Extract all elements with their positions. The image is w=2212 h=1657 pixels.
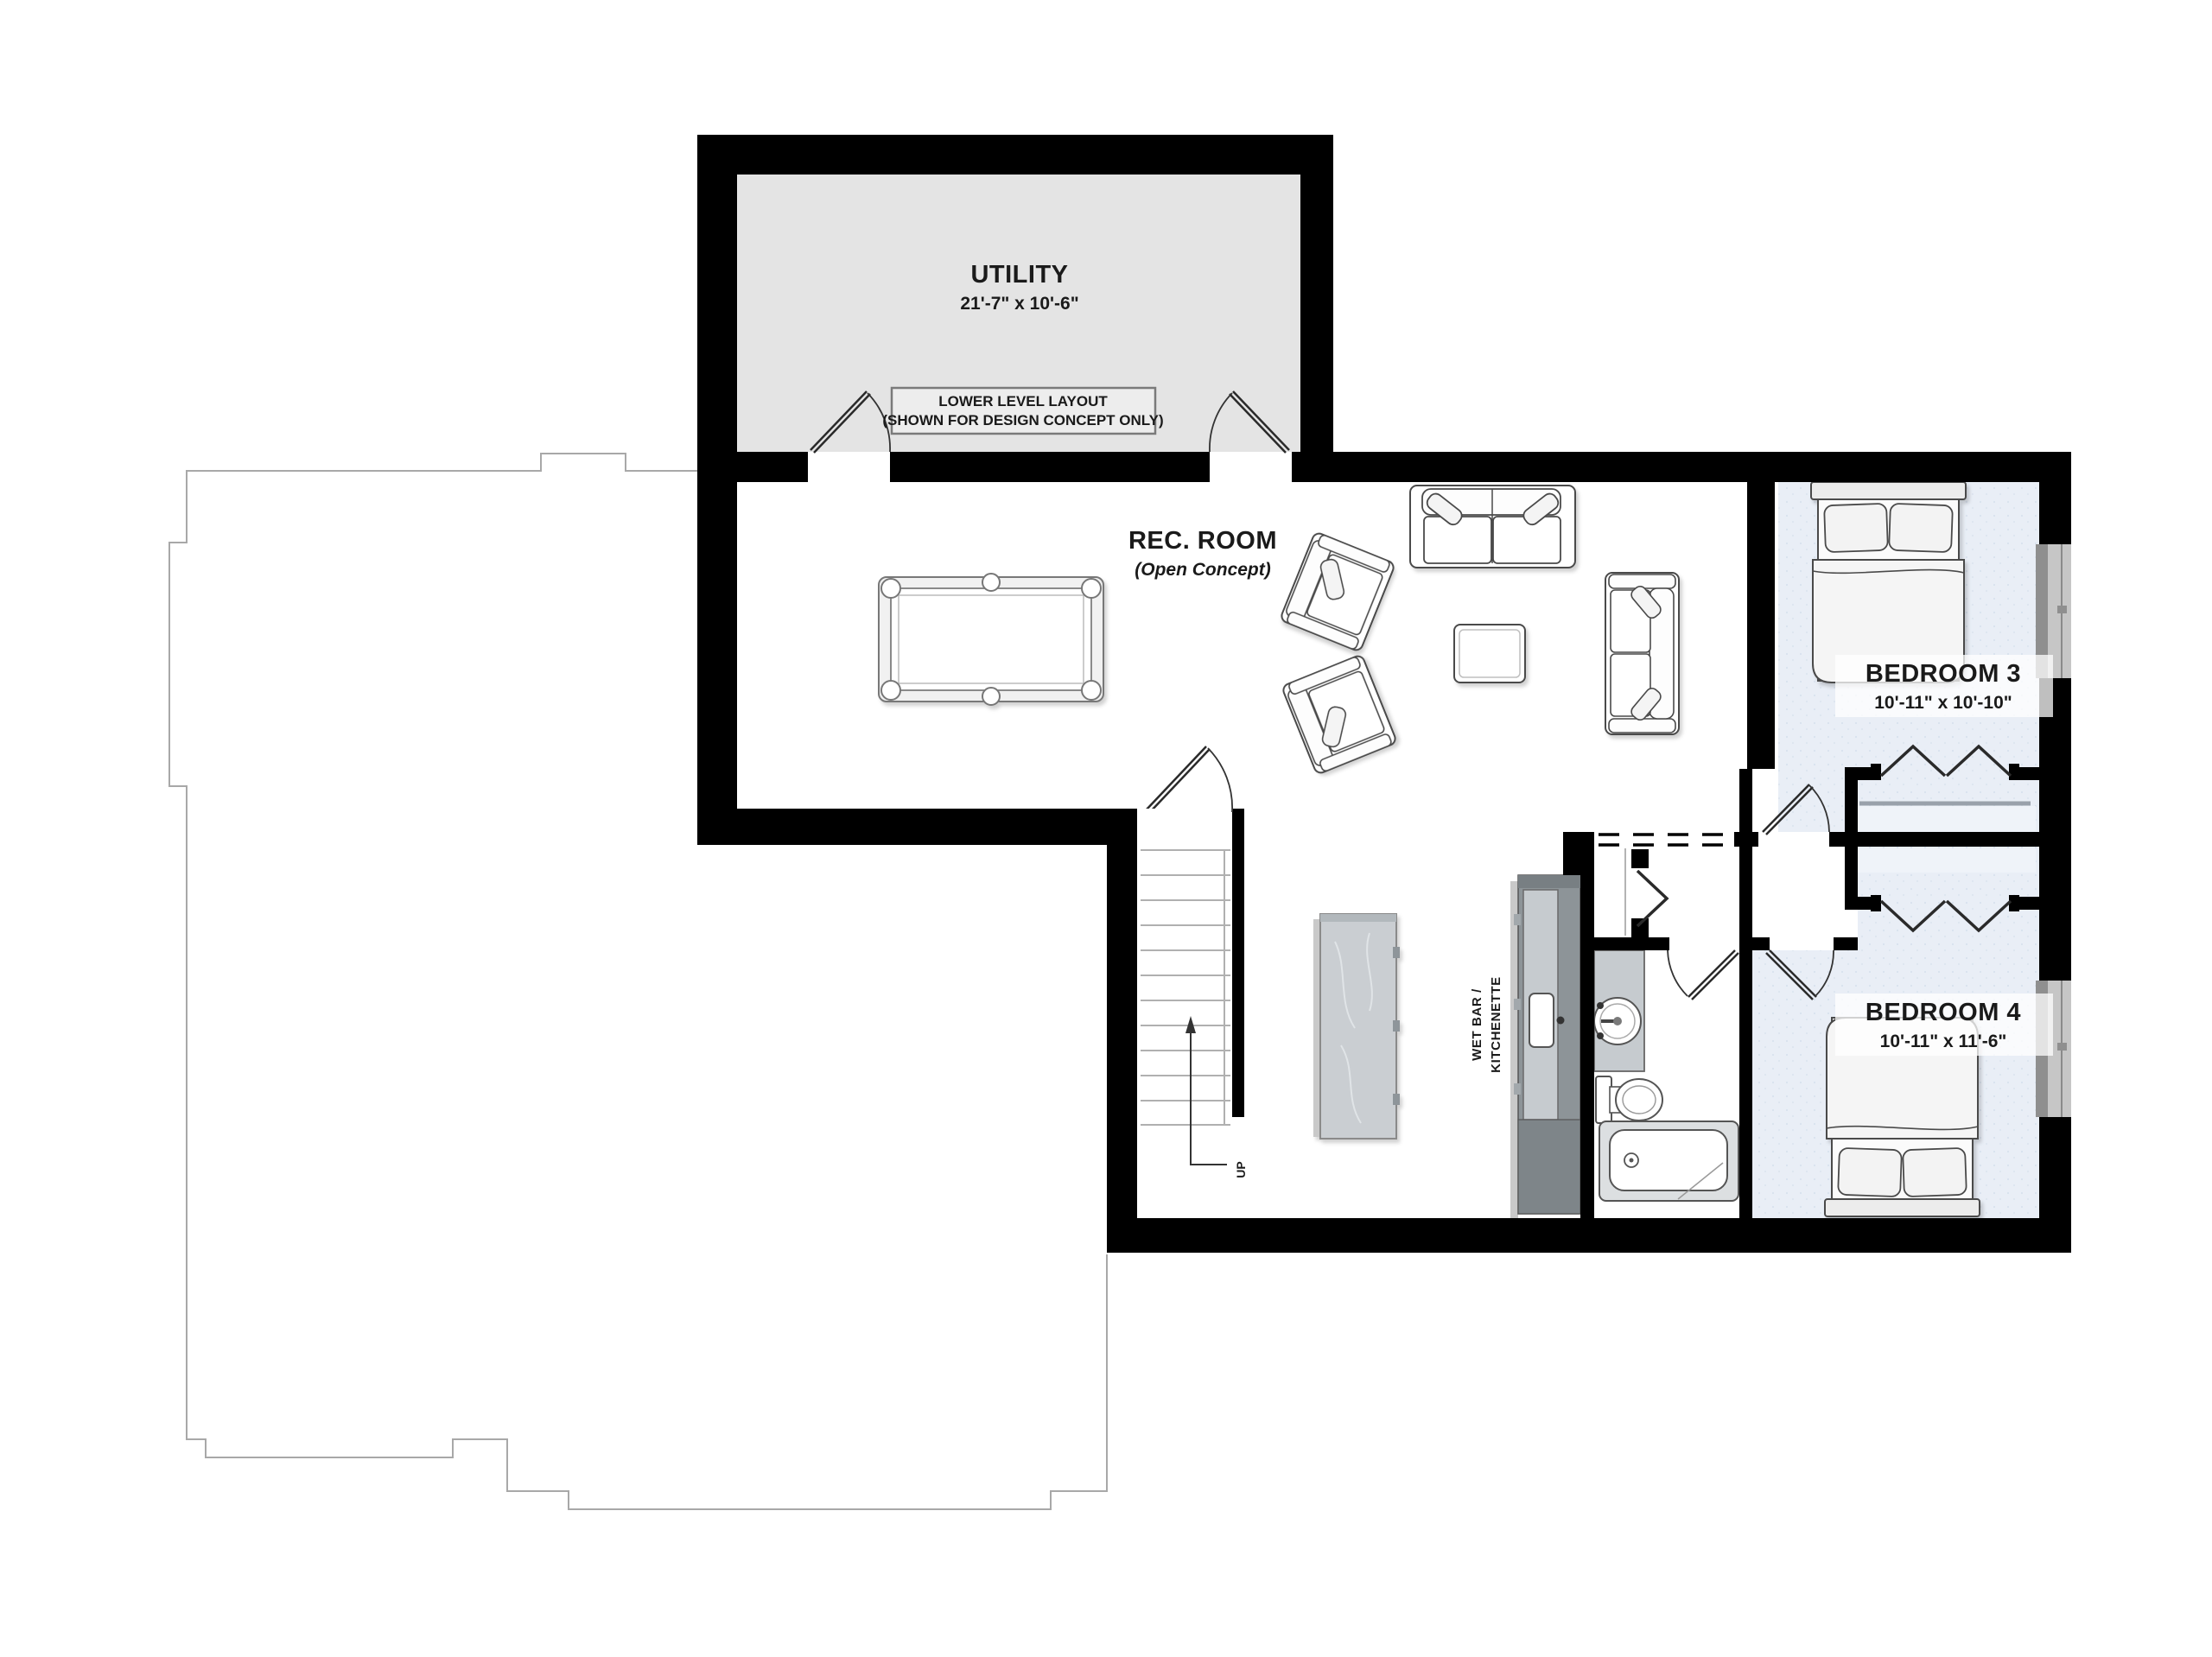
rec-room-label: REC. ROOM (1128, 527, 1277, 555)
bedroom4-label: BEDROOM 4 (1866, 999, 2021, 1026)
bedroom4-closet-floor (1858, 848, 2036, 873)
bedroom4-dims: 10'-11" x 11'-6" (1880, 1032, 2007, 1051)
wetbar-label-line1: WET BAR / (1470, 988, 1484, 1061)
kitchen-island (1313, 914, 1400, 1139)
disclaimer-line2: (SHOWN FOR DESIGN CONCEPT ONLY) (882, 412, 1163, 429)
coffee-table (1454, 625, 1525, 682)
utility-dims: 21'-7" x 10'-6" (960, 294, 1078, 314)
sofa (1410, 486, 1575, 568)
wetbar-counter (1510, 875, 1580, 1218)
bedroom3-label: BEDROOM 3 (1866, 660, 2021, 688)
pool-table (879, 574, 1103, 705)
utility-label: UTILITY (970, 261, 1068, 289)
bed-3 (1811, 482, 1966, 682)
wetbar-label-line2: KITCHENETTE (1489, 976, 1503, 1073)
disclaimer-box: LOWER LEVEL LAYOUT (SHOWN FOR DESIGN CON… (882, 388, 1163, 434)
loveseat (1605, 573, 1679, 734)
vanity-sink (1594, 950, 1644, 1071)
bathtub (1599, 1121, 1738, 1201)
rec-room-sub: (Open Concept) (1135, 560, 1271, 580)
up-label: UP (1234, 1161, 1248, 1178)
bedroom3-dims: 10'-11" x 10'-10" (1874, 693, 2012, 713)
bedroom3-closet-floor (1858, 806, 2036, 831)
floor-plan: UP UTILITY 21'-7" x 10'-6" LOWER LEVEL L… (0, 0, 2212, 1657)
disclaimer-line1: LOWER LEVEL LAYOUT (938, 393, 1108, 409)
toilet (1596, 1076, 1662, 1123)
floor-plan-page: UP UTILITY 21'-7" x 10'-6" LOWER LEVEL L… (0, 0, 2212, 1657)
